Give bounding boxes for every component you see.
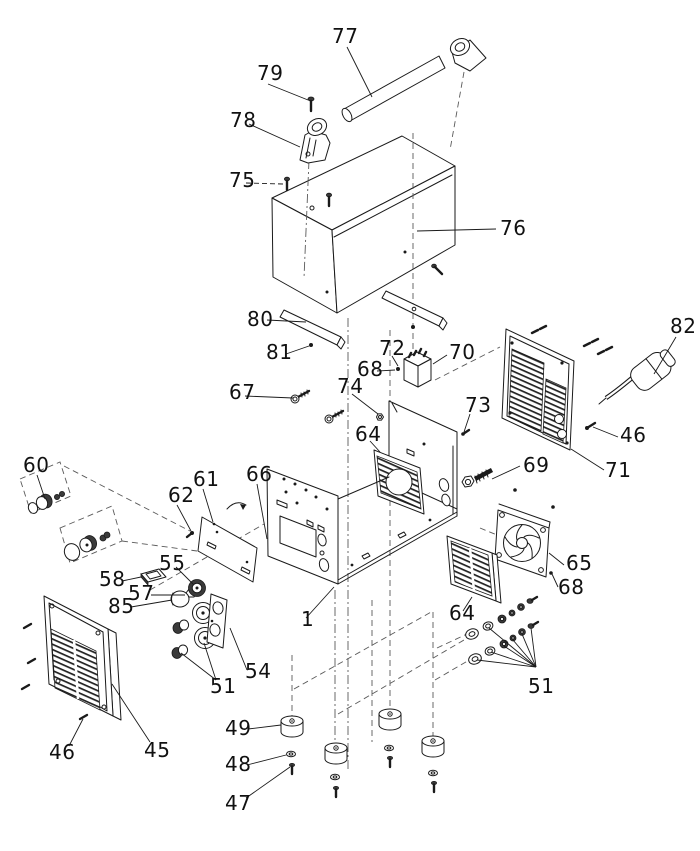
callout-77: 77 [332, 24, 358, 48]
callout-66: 66 [246, 462, 272, 486]
callout-80: 80 [247, 307, 273, 331]
callout-49: 49 [225, 716, 251, 740]
callout-46-left: 46 [49, 740, 75, 764]
callout-58: 58 [99, 567, 125, 591]
callout-85: 85 [108, 594, 134, 618]
callout-79: 79 [257, 61, 283, 85]
callout-78: 78 [230, 108, 256, 132]
part-nut-74 [377, 414, 384, 420]
callout-60: 60 [23, 453, 49, 477]
part-screw-68-top [396, 367, 400, 371]
callout-82: 82 [670, 314, 696, 338]
callout-71: 71 [605, 458, 631, 482]
callout-47: 47 [225, 791, 251, 815]
callout-48: 48 [225, 752, 251, 776]
part-plate-54 [207, 594, 227, 648]
callout-54: 54 [245, 659, 271, 683]
callout-62: 62 [168, 483, 194, 507]
callout-67: 67 [229, 380, 255, 404]
callout-51-right: 51 [528, 674, 554, 698]
background [0, 0, 700, 851]
callout-73: 73 [465, 393, 491, 417]
callout-69: 69 [523, 453, 549, 477]
callout-81: 81 [266, 340, 292, 364]
exploded-parts-diagram: 77 79 78 75 76 80 81 72 68 70 82 67 74 6… [0, 0, 700, 851]
callout-64-bottom: 64 [449, 601, 475, 625]
callout-61: 61 [193, 467, 219, 491]
diagram-canvas: 77 79 78 75 76 80 81 72 68 70 82 67 74 6… [0, 0, 700, 851]
callout-76: 76 [500, 216, 526, 240]
callout-65: 65 [566, 551, 592, 575]
callout-75: 75 [229, 168, 255, 192]
callout-68-bottom: 68 [558, 575, 584, 599]
callout-70: 70 [449, 340, 475, 364]
part-cap-85 [171, 591, 189, 607]
callout-55: 55 [159, 551, 185, 575]
callout-45: 45 [144, 738, 170, 762]
callout-74: 74 [337, 374, 363, 398]
callout-46-right: 46 [620, 423, 646, 447]
callout-1: 1 [301, 607, 314, 631]
callout-51-left: 51 [210, 674, 236, 698]
callout-64-top: 64 [355, 422, 381, 446]
